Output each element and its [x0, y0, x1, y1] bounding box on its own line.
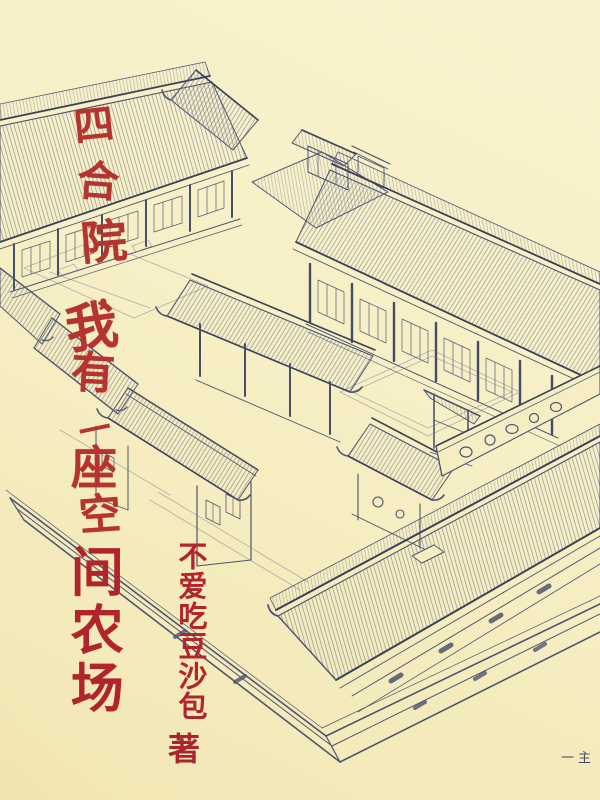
title-script-char: 合: [76, 161, 121, 206]
author-suffix-zhu: 著: [168, 733, 200, 765]
title-script-char: 座: [71, 446, 117, 492]
title-main: 间农场: [63, 544, 120, 718]
title-script-char: 有: [70, 351, 116, 397]
title-script-char: 院: [79, 218, 129, 268]
corner-sketch-mark: 一主: [561, 747, 600, 766]
author-name: 不爱吃豆沙包: [173, 541, 205, 721]
title-script-char: 四: [72, 104, 116, 148]
book-cover: 四合院，我有一座空 间农场 不爱吃豆沙包 著 一主: [0, 0, 600, 800]
title-script-char: 空: [78, 494, 123, 539]
